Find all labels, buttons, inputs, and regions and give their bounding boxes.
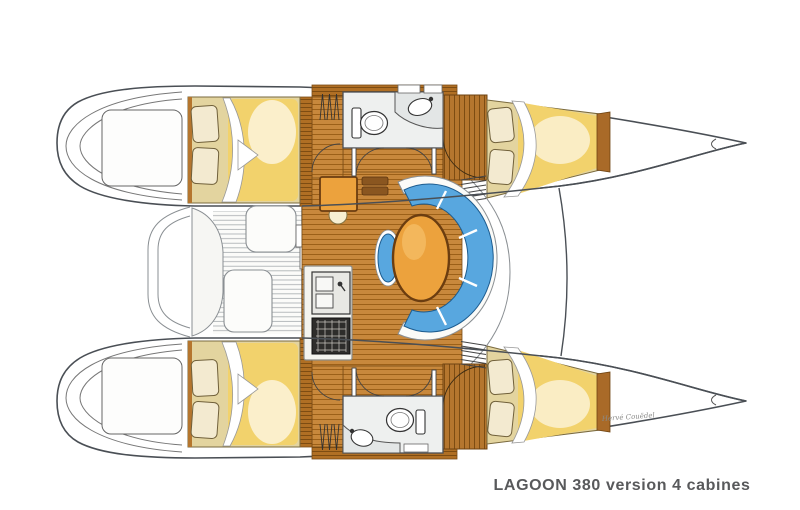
salon-sliding-door: [296, 225, 302, 247]
starboard-wardrobe: [443, 364, 487, 449]
plan-caption: LAGOON 380 version 4 cabines: [494, 477, 751, 494]
port-head-faucet: [429, 97, 433, 101]
port-head-shelf: [398, 85, 420, 93]
cockpit: [192, 206, 306, 337]
pillow: [488, 149, 515, 185]
pillow: [191, 401, 219, 439]
forward-bulkhead-trim: [597, 112, 610, 172]
duvet-highlight: [530, 380, 590, 428]
aft-crossbeam: [148, 207, 190, 337]
port-aft-cabin-floor-strip: [300, 97, 312, 206]
mast-beam: [559, 188, 567, 356]
port-head: [343, 85, 443, 148]
pillow: [487, 107, 514, 143]
galley-sink: [312, 272, 350, 314]
port-wardrobe: [443, 95, 487, 180]
starboard-head-toilet-tank: [416, 410, 425, 434]
port-passage-floor: [343, 148, 458, 172]
forward-bulkhead-trim: [597, 372, 610, 432]
salon-step: [362, 187, 388, 195]
starboard-head-faucet: [350, 429, 354, 433]
pillow: [191, 359, 219, 396]
port-forward-cabin: [487, 100, 610, 198]
pillow: [191, 147, 219, 184]
galley-stove: [312, 318, 350, 354]
port-head-shelf: [424, 85, 442, 93]
port-head-toilet-tank: [352, 108, 361, 138]
pillow: [488, 359, 515, 395]
starboard-head-toilet-bowl: [387, 409, 414, 432]
pillow: [191, 105, 219, 143]
layout-plan: Hervé Couëdel LAGOON 380 version 4 cabin…: [0, 0, 800, 510]
port-head-toilet-bowl: [361, 112, 388, 135]
pillow: [487, 401, 514, 437]
cockpit-cushion: [246, 206, 296, 252]
duvet-highlight: [530, 116, 590, 164]
starboard-passage-floor: [343, 366, 458, 398]
cockpit-cushion: [224, 270, 272, 332]
table-highlight: [402, 224, 426, 260]
starboard-forward-cabin: [487, 346, 610, 444]
salon-step: [362, 177, 388, 185]
catamaran-floorplan-svg: Hervé Couëdel LAGOON 380 version 4 cabin…: [0, 0, 800, 510]
galley: [304, 266, 352, 360]
starboard-head: [343, 396, 443, 453]
port-aft-cabin: [188, 97, 300, 203]
starboard-aft-cabin: [188, 341, 300, 447]
starboard-head-shelf: [404, 444, 428, 452]
